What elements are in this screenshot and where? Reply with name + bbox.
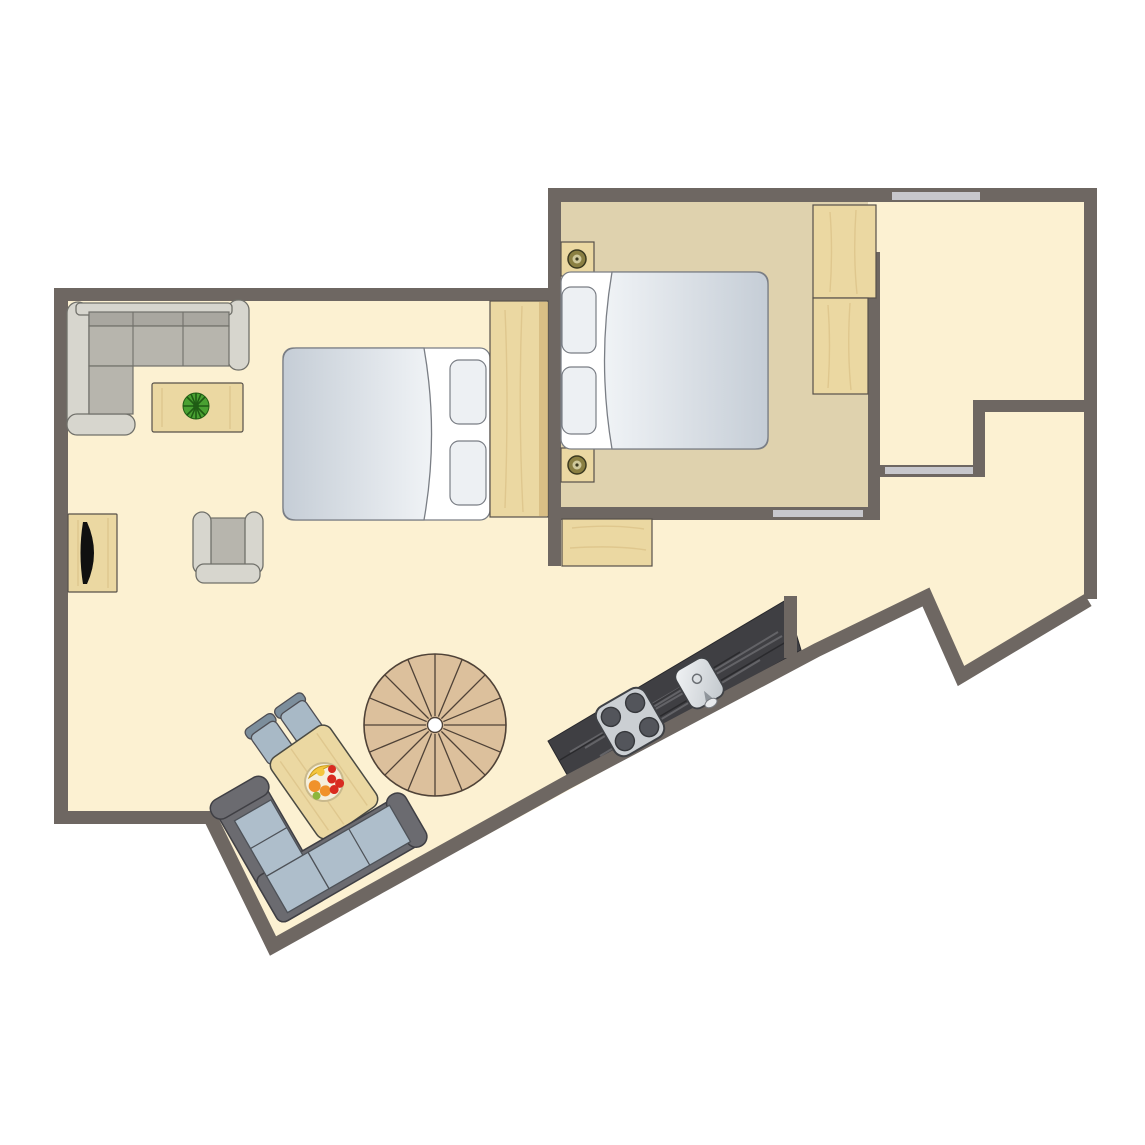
potted-plant bbox=[183, 393, 209, 419]
floor-plan-canvas bbox=[0, 0, 1145, 1145]
spiral-staircase bbox=[364, 654, 506, 796]
double-bed-living bbox=[283, 348, 490, 520]
wall-kitchen-stub bbox=[784, 596, 797, 658]
pillow bbox=[562, 367, 596, 434]
nightstand-top bbox=[561, 242, 594, 276]
door-right-room bbox=[885, 467, 973, 474]
double-bed-bedroom bbox=[561, 272, 768, 449]
pillow bbox=[450, 441, 486, 505]
door-bedroom-south bbox=[773, 510, 863, 517]
wall-rightroom-horiz bbox=[973, 400, 1084, 412]
wall-bedroom-top bbox=[548, 188, 1097, 202]
wall-bottom-left bbox=[54, 811, 214, 824]
armchair bbox=[193, 512, 263, 583]
coffee-table bbox=[152, 383, 243, 432]
wall-right bbox=[1084, 188, 1097, 599]
floor-plan-svg bbox=[0, 0, 1145, 1145]
pillow bbox=[562, 287, 596, 353]
wardrobe-bedroom-lower bbox=[813, 298, 868, 394]
wall-left bbox=[54, 288, 68, 824]
hall-cabinet bbox=[562, 519, 652, 566]
nightstand-bottom bbox=[561, 448, 594, 482]
wardrobe-living bbox=[490, 301, 548, 517]
pillow bbox=[450, 360, 486, 424]
window-top-wall bbox=[892, 192, 980, 200]
wall-living-top bbox=[54, 288, 561, 301]
tv-sideboard bbox=[68, 514, 117, 592]
wardrobe-bedroom-upper bbox=[813, 205, 876, 298]
